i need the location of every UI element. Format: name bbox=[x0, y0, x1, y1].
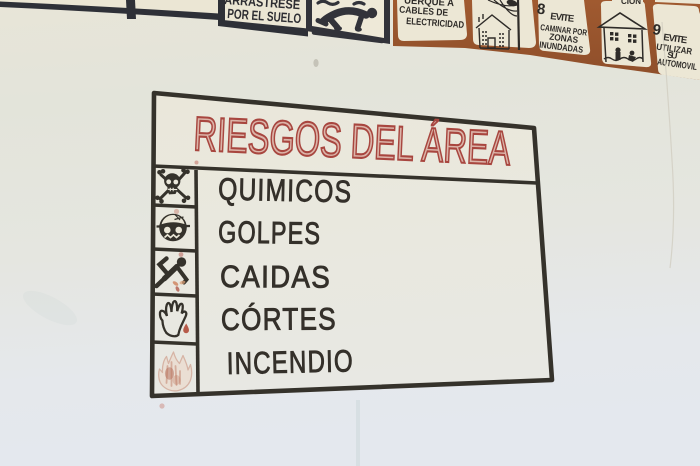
svg-text:QUIMICOS: QUIMICOS bbox=[218, 172, 353, 210]
svg-text:GOLPES: GOLPES bbox=[218, 215, 321, 251]
svg-text:8: 8 bbox=[536, 1, 546, 19]
svg-text:CION: CION bbox=[621, 0, 641, 6]
svg-text:CAIDAS: CAIDAS bbox=[220, 259, 331, 295]
svg-text:CÓRTES: CÓRTES bbox=[221, 301, 337, 337]
svg-text:INCENDIO: INCENDIO bbox=[226, 343, 354, 381]
